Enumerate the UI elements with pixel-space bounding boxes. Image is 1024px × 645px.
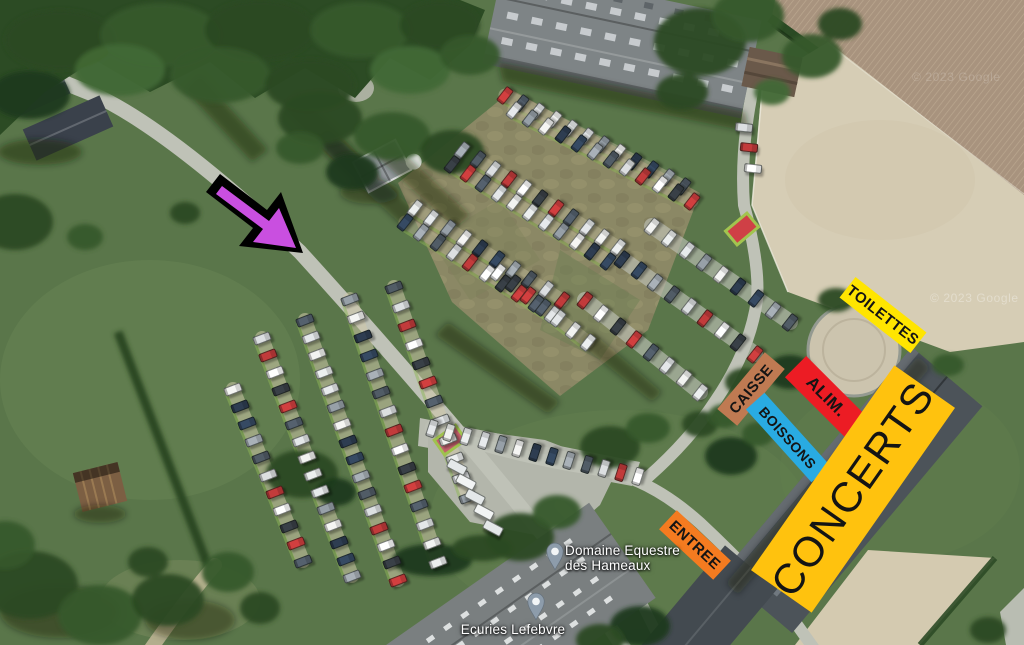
parked-car [336, 552, 356, 567]
parked-car [371, 385, 391, 400]
parked-car [696, 309, 714, 329]
parked-car [357, 486, 377, 501]
parked-car [329, 535, 349, 550]
parked-car [459, 426, 473, 446]
parked-car [729, 332, 747, 352]
map-label-ecuries-line1: Ecuries Lefebvre [433, 622, 593, 637]
parked-car [683, 191, 701, 211]
parked-car [378, 404, 398, 419]
parked-car [482, 518, 504, 536]
parked-car [455, 473, 477, 491]
parked-car [528, 442, 542, 462]
parked-car [695, 252, 713, 272]
shed-b [23, 95, 114, 160]
parked-car [545, 446, 559, 466]
parked-car [384, 423, 404, 438]
parked-car [293, 554, 313, 569]
parked-car [376, 538, 396, 553]
parked-car [476, 430, 490, 450]
parked-car [388, 573, 408, 588]
map-label-domaine-line2: des Hameaux [565, 558, 680, 573]
parked-car [677, 240, 695, 260]
parked-car [230, 399, 250, 414]
parked-car [272, 502, 292, 517]
parked-car [403, 479, 423, 494]
parked-car [338, 434, 358, 449]
parked-car [332, 417, 352, 432]
parked-car [391, 299, 411, 314]
parked-car [576, 290, 594, 310]
parked-car [310, 484, 330, 499]
parked-car [663, 285, 681, 305]
pin-icon [525, 591, 547, 621]
parked-car [323, 518, 343, 533]
parked-car [258, 348, 278, 363]
parked-car [691, 382, 709, 402]
red-trailer [725, 213, 758, 245]
map-label-domaine-line1: Domaine Equestre [565, 543, 680, 558]
parked-car [404, 337, 424, 352]
parked-car [609, 316, 627, 336]
parked-car [568, 232, 586, 252]
parked-car [384, 280, 404, 295]
arrow-outline [206, 174, 303, 253]
parked-car [642, 343, 660, 363]
parked-car [631, 466, 645, 486]
parked-car [397, 318, 417, 333]
parked-car [316, 501, 336, 516]
parked-car [464, 488, 486, 506]
parked-car [679, 297, 697, 317]
brown-shed [741, 47, 802, 97]
parked-car [365, 367, 385, 382]
parked-car [314, 365, 334, 380]
parked-car [729, 276, 747, 296]
parked-car [363, 503, 383, 518]
parked-car [284, 416, 304, 431]
parked-car [674, 369, 692, 389]
parked-car [342, 569, 362, 584]
parked-car [390, 442, 410, 457]
parked-car [643, 216, 661, 236]
parked-car [326, 399, 346, 414]
parked-car [511, 438, 525, 458]
parked-car [712, 264, 730, 284]
parked-car [744, 163, 763, 174]
parked-car [301, 330, 321, 345]
direction-arrow [0, 0, 1024, 645]
shed-a [0, 68, 70, 124]
parked-car [625, 330, 643, 350]
parked-car [409, 498, 429, 513]
pin-icon [544, 541, 566, 571]
plowed-field [770, 0, 1024, 209]
parked-car [297, 450, 317, 465]
parked-car [461, 253, 479, 273]
map-pin-domaine[interactable] [544, 541, 566, 571]
parked-car [579, 332, 597, 352]
parked-car [660, 228, 678, 248]
parked-car [459, 164, 477, 184]
parked-car [411, 356, 431, 371]
map-label-ecuries[interactable]: Ecuries Lefebvre [433, 622, 593, 637]
parked-car [265, 365, 285, 380]
parked-car [781, 312, 799, 332]
parked-car [291, 433, 311, 448]
farmhouse [353, 133, 425, 194]
label-toilettes: TOILETTES [840, 277, 927, 353]
parked-car [415, 517, 435, 532]
parked-car [764, 300, 782, 320]
parked-car [251, 450, 271, 465]
parked-car [279, 519, 299, 534]
parked-car [303, 467, 323, 482]
parked-car [223, 382, 243, 397]
parked-car [583, 241, 601, 261]
parked-car [429, 233, 447, 253]
parked-car [340, 292, 360, 307]
parked-car [445, 243, 463, 263]
annotated-satellite-map[interactable]: TOILETTES CAISSE ALIM. BOISSONS ENTREE C… [0, 0, 1024, 645]
parked-car [412, 222, 430, 242]
parked-car [562, 450, 576, 470]
parked-car [713, 320, 731, 340]
parked-car [369, 521, 389, 536]
parked-car [521, 203, 539, 223]
parked-car [552, 222, 570, 242]
parked-car [630, 261, 648, 281]
parked-car [237, 416, 257, 431]
parked-car [258, 468, 278, 483]
google-watermark: © 2023 Google [930, 291, 1019, 305]
parked-car [425, 418, 439, 438]
parked-car [490, 183, 508, 203]
parked-car [646, 273, 664, 293]
parked-car [424, 394, 444, 409]
parked-car [473, 503, 495, 521]
parked-car [265, 485, 285, 500]
parked-car [614, 462, 628, 482]
google-watermark-faint: © 2023 Google [912, 70, 1001, 84]
parked-car [396, 212, 414, 232]
parked-car [474, 174, 492, 194]
parked-car [244, 433, 264, 448]
parked-car [735, 122, 754, 133]
parked-car [351, 469, 371, 484]
parked-car [271, 382, 291, 397]
parked-car [579, 454, 593, 474]
parked-car [346, 310, 366, 325]
parked-car [307, 347, 327, 362]
parked-car [443, 154, 461, 174]
parked-car [658, 356, 676, 376]
parked-car [422, 536, 442, 551]
parked-car [397, 461, 417, 476]
parked-car [739, 142, 758, 153]
parked-car [505, 193, 523, 213]
parked-car [597, 458, 611, 478]
parked-car [278, 399, 298, 414]
rusty-barn [73, 462, 127, 512]
parked-car [494, 434, 508, 454]
parked-car [564, 320, 582, 340]
map-label-domaine[interactable]: Domaine Equestre des Hameaux [565, 543, 680, 573]
map-pin-ecuries[interactable] [525, 591, 547, 621]
parked-car [746, 288, 764, 308]
parked-car [295, 313, 315, 328]
parked-car [428, 555, 448, 570]
parked-car [345, 451, 365, 466]
parked-car [286, 536, 306, 551]
parked-car [252, 331, 272, 346]
parked-car [320, 382, 340, 397]
arrow-fill [216, 186, 296, 248]
parked-car [353, 329, 373, 344]
parked-car [418, 375, 438, 390]
parked-car [496, 85, 514, 105]
parked-car [359, 348, 379, 363]
aerial-terrain [0, 0, 1024, 645]
parked-car [592, 303, 610, 323]
parked-car [382, 555, 402, 570]
parked-car [537, 212, 555, 232]
